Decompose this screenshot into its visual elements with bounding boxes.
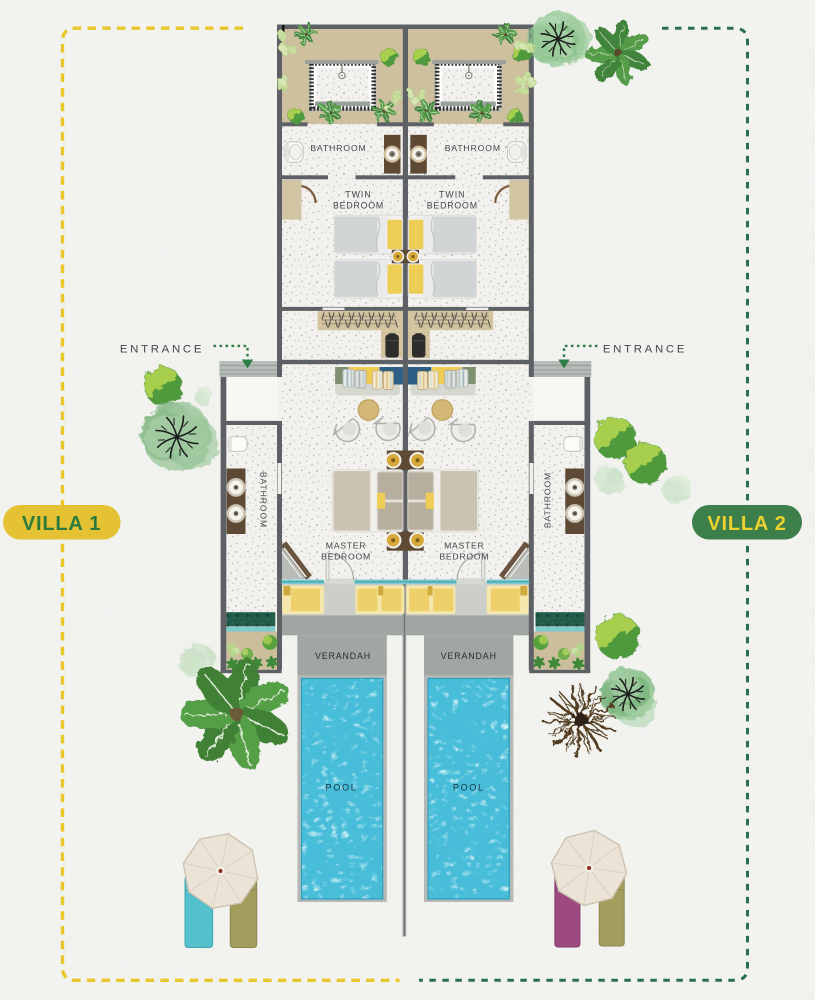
svg-text:VILLA 1: VILLA 1	[22, 513, 101, 535]
svg-text:VERANDAH: VERANDAH	[441, 651, 497, 661]
svg-text:MASTER: MASTER	[444, 541, 484, 551]
svg-text:ENTRANCE: ENTRANCE	[603, 344, 687, 356]
svg-text:MASTER: MASTER	[326, 541, 366, 551]
svg-text:BATHROOM: BATHROOM	[445, 143, 501, 153]
svg-text:TWIN: TWIN	[439, 190, 465, 200]
svg-text:VERANDAH: VERANDAH	[315, 651, 371, 661]
svg-text:BATHROOM: BATHROOM	[543, 472, 553, 528]
svg-text:BEDROOM: BEDROOM	[439, 552, 489, 562]
svg-text:ENTRANCE: ENTRANCE	[120, 344, 204, 356]
svg-text:BEDROOM: BEDROOM	[427, 201, 478, 211]
svg-text:BATHROOM: BATHROOM	[310, 143, 366, 153]
svg-text:POOL: POOL	[453, 783, 485, 793]
svg-text:BEDROOM: BEDROOM	[321, 552, 371, 562]
svg-text:BATHROOM: BATHROOM	[259, 472, 269, 528]
svg-text:POOL: POOL	[326, 783, 358, 793]
svg-text:TWIN: TWIN	[345, 190, 371, 200]
svg-text:VILLA 2: VILLA 2	[707, 513, 786, 535]
svg-text:BEDROOM: BEDROOM	[333, 201, 384, 211]
